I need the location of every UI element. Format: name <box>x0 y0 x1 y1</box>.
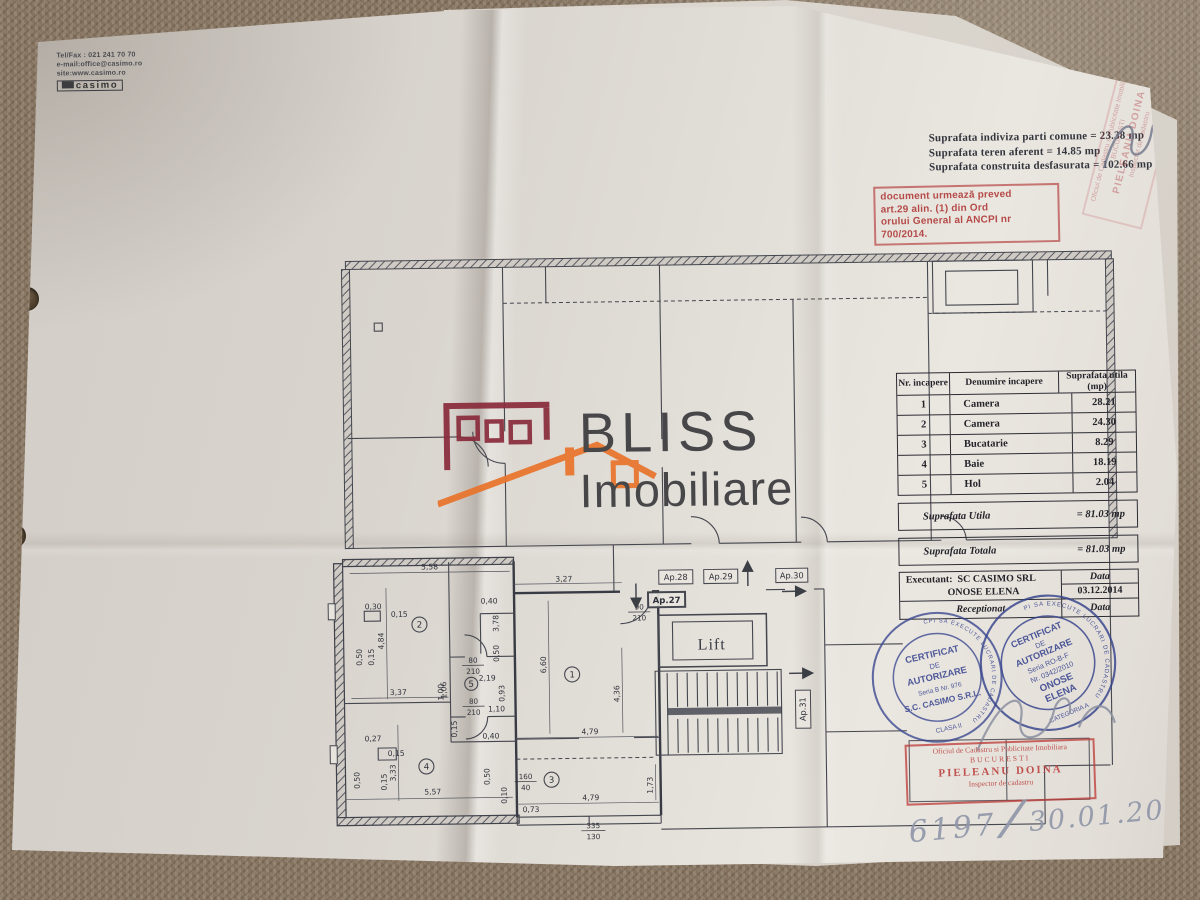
dim: 0,40 <box>482 731 499 740</box>
cell-area: 24.30 <box>1073 417 1136 429</box>
window-height: 40 <box>521 783 531 792</box>
total-totala-value: = 81.03 mp <box>1077 543 1137 555</box>
dim: 0,50 <box>492 645 501 662</box>
casimo-logo: casimo <box>57 80 123 92</box>
door-width: 80 <box>469 697 479 706</box>
photo-scene: Tel/Fax : 021 241 70 70 e-mail:office@ca… <box>0 0 1200 900</box>
apartment-label-current: Ap.27 <box>653 596 681 606</box>
dim: 0,10 <box>500 787 509 804</box>
lift-and-stairs: Lift <box>654 613 782 755</box>
cell-nr: 3 <box>898 435 951 455</box>
total-totala-label: Suprafata Totala <box>899 545 996 557</box>
dim: 0,15 <box>391 610 408 619</box>
window-height: 130 <box>586 832 600 841</box>
dimension-labels: 5,58 0,30 0,15 4,84 0,50 0,15 3,37 1,06 … <box>350 559 656 816</box>
apartment-labels: Ap.28 Ap.29 Ap.30 Ap.27 Ap.31 <box>648 568 811 730</box>
cell-area: 18.19 <box>1073 457 1136 469</box>
cell-nr: 1 <box>897 395 950 415</box>
room-number: 2 <box>417 621 423 631</box>
cell-area: 2.04 <box>1073 477 1136 489</box>
dim: 3,37 <box>390 688 407 697</box>
room-number: 3 <box>549 776 555 786</box>
dim: 3,27 <box>555 574 572 583</box>
apartment-label: Ap.30 <box>780 570 804 580</box>
room-number: 5 <box>468 680 474 690</box>
cell-name: Camera <box>950 393 1072 414</box>
room-number: 1 <box>569 670 575 680</box>
cell-name: Hol <box>951 473 1073 494</box>
window-width: 335 <box>586 821 600 830</box>
door-height: 210 <box>467 708 481 717</box>
window-width: 160 <box>519 772 533 781</box>
executant-label: Executant: <box>906 574 953 586</box>
ocpi-bucuresti-stamp: Oficiul de Cadastru si Publicitate Imobi… <box>905 738 1097 806</box>
cell-name: Bucatarie <box>951 433 1073 454</box>
watermark-title: BLISS <box>578 399 763 465</box>
dim: 3,78 <box>491 615 500 632</box>
casimo-logo-text: casimo <box>76 80 118 92</box>
contact-site: site:www.casimo.ro <box>57 68 143 78</box>
dim: 0,73 <box>522 805 539 814</box>
handwritten-slash: / <box>1001 803 1024 835</box>
dim: 1,73 <box>646 777 655 794</box>
document-sheet: Tel/Fax : 021 241 70 70 e-mail:office@ca… <box>0 0 1200 900</box>
document-content: Tel/Fax : 021 241 70 70 e-mail:office@ca… <box>0 0 1200 900</box>
cell-name: Camera <box>951 413 1073 434</box>
dim: 4,84 <box>377 632 386 649</box>
dim: 0,15 <box>379 773 388 790</box>
door-width: 80 <box>468 656 478 665</box>
lift-label: Lift <box>698 636 726 653</box>
dim: 5,57 <box>424 787 441 796</box>
dim: 0,40 <box>481 596 498 605</box>
dim: 3,33 <box>388 764 397 781</box>
cell-area: 28.21 <box>1072 397 1135 409</box>
dim: 0,15 <box>367 649 376 666</box>
dim: 0,93 <box>497 685 506 702</box>
header-nr: Nr. incapere <box>897 373 950 395</box>
punch-hole <box>15 287 39 311</box>
stamp-line: DE <box>929 660 941 671</box>
dim: 1,10 <box>488 704 505 713</box>
cell-nr: 5 <box>898 475 951 495</box>
executant-company-name: SC CASIMO SRL <box>957 573 1036 585</box>
table-row: 5 Hol 2.04 <box>898 473 1136 495</box>
dim: 4,79 <box>582 793 599 802</box>
company-contact-block: Tel/Fax : 021 241 70 70 e-mail:office@ca… <box>56 50 142 91</box>
header-denumire: Denumire incapere <box>950 372 1059 395</box>
cell-nr: 2 <box>898 415 951 435</box>
total-utila-value: = 81.03 mp <box>1077 508 1137 520</box>
room-table-grid: Nr. incapere Denumire incapere Suprafata… <box>896 370 1138 496</box>
dim: 6,60 <box>539 656 548 673</box>
punch-hole <box>2 524 26 548</box>
cell-area: 8.29 <box>1073 437 1136 449</box>
dim: 0,27 <box>364 734 381 743</box>
total-utila-row: Suprafata Utila = 81.03 mp <box>898 499 1138 530</box>
total-utila-label: Suprafata Utila <box>899 510 991 522</box>
dim: 2,19 <box>479 673 496 682</box>
stair-rail <box>668 706 782 715</box>
room-number: 4 <box>424 762 430 772</box>
apartment-label: Ap.29 <box>709 571 733 581</box>
dim: 0,15 <box>450 720 459 737</box>
door-size-fractions: 80 210 80 210 90 210 160 40 335 130 <box>461 602 653 843</box>
dim: 4,36 <box>612 685 621 702</box>
dim: 1,00 <box>436 684 445 701</box>
apartment-label: Ap.28 <box>664 572 688 582</box>
apartment-label: Ap.31 <box>797 697 807 721</box>
dim: 0,50 <box>355 649 364 666</box>
door-height: 210 <box>466 667 480 676</box>
cell-name: Baie <box>951 453 1073 474</box>
casimo-logo-bar <box>62 81 74 88</box>
door-height: 210 <box>632 613 646 622</box>
dim: 0,50 <box>482 768 491 785</box>
dim: 4,79 <box>581 727 598 736</box>
room-area-table: Nr. incapere Denumire incapere Suprafata… <box>896 370 1139 620</box>
total-totala-row: Suprafata Totala = 81.03 mp <box>898 534 1138 565</box>
bliss-imobiliare-watermark: BLISS Imobiliare <box>436 392 838 523</box>
dim: 0,30 <box>365 602 382 611</box>
dim: 0,50 <box>352 772 361 789</box>
dim: 5,58 <box>421 562 438 571</box>
header-suprafata: Suprafata utila (mp) <box>1059 371 1135 393</box>
stamp-line: CLASA II <box>935 722 963 735</box>
dim: 0,15 <box>388 749 405 758</box>
cell-nr: 4 <box>898 455 951 475</box>
watermark-subtitle: Imobiliare <box>579 461 793 517</box>
